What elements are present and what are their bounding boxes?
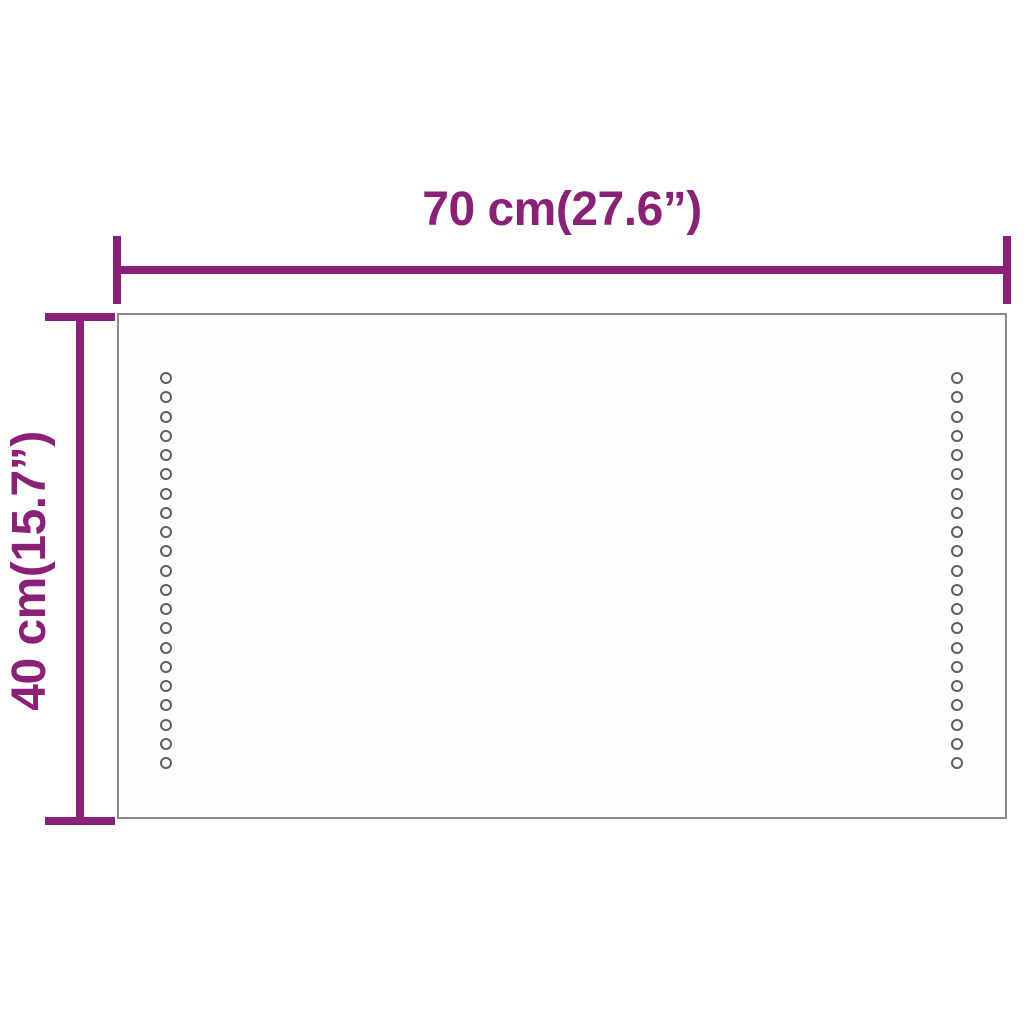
- led-dot: [951, 757, 963, 769]
- led-dot: [160, 545, 172, 557]
- led-dot: [160, 411, 172, 423]
- led-dot-column-left: [160, 372, 172, 769]
- width-dimension-left-cap: [113, 236, 121, 304]
- led-dot: [160, 565, 172, 577]
- led-dot: [951, 411, 963, 423]
- led-dot: [160, 391, 172, 403]
- led-dot: [951, 430, 963, 442]
- led-dot: [951, 507, 963, 519]
- led-dot: [951, 622, 963, 634]
- led-dot: [160, 680, 172, 692]
- height-dimension-line: [76, 313, 84, 825]
- led-dot: [951, 680, 963, 692]
- led-dot: [160, 642, 172, 654]
- led-dot: [160, 719, 172, 731]
- width-dimension-right-cap: [1003, 236, 1011, 304]
- led-dot: [160, 372, 172, 384]
- led-dot: [160, 603, 172, 615]
- led-dot: [160, 757, 172, 769]
- led-dot: [951, 545, 963, 557]
- led-dot: [160, 430, 172, 442]
- led-dot: [951, 449, 963, 461]
- width-dimension-label: 70 cm(27.6”): [262, 186, 862, 234]
- led-dot: [951, 391, 963, 403]
- led-dot: [951, 372, 963, 384]
- led-dot: [160, 488, 172, 500]
- led-dot: [951, 468, 963, 480]
- led-dot: [951, 565, 963, 577]
- led-dot: [951, 488, 963, 500]
- led-dot-column-right: [951, 372, 963, 769]
- led-dot: [160, 622, 172, 634]
- led-dot: [951, 661, 963, 673]
- dimension-diagram: 70 cm(27.6”) 40 cm(15.7”): [0, 0, 1024, 1024]
- led-dot: [160, 738, 172, 750]
- mirror-outline: [117, 313, 1007, 819]
- led-dot: [160, 584, 172, 596]
- led-dot: [160, 507, 172, 519]
- led-dot: [160, 699, 172, 711]
- led-dot: [951, 642, 963, 654]
- width-dimension-line: [117, 266, 1007, 274]
- led-dot: [951, 526, 963, 538]
- led-dot: [160, 468, 172, 480]
- led-dot: [951, 719, 963, 731]
- height-dimension-label: 40 cm(15.7”): [4, 271, 56, 871]
- led-dot: [951, 738, 963, 750]
- led-dot: [951, 584, 963, 596]
- led-dot: [951, 603, 963, 615]
- led-dot: [160, 449, 172, 461]
- led-dot: [160, 526, 172, 538]
- led-dot: [951, 699, 963, 711]
- led-dot: [160, 661, 172, 673]
